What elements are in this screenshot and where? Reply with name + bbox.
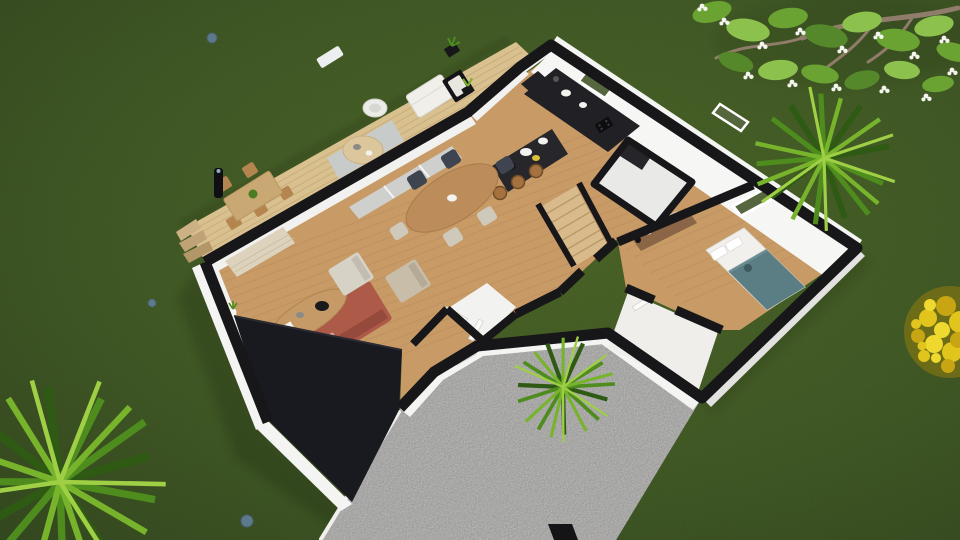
wire-chair-seat <box>369 104 381 113</box>
counter-plate <box>579 102 587 108</box>
yellow-dish <box>532 155 540 161</box>
table-tray <box>315 301 329 311</box>
house-render <box>0 0 960 540</box>
kettle <box>553 76 559 82</box>
bollard-lamp <box>217 169 221 173</box>
tabletop-plate <box>353 144 361 150</box>
table-decor <box>296 312 304 318</box>
throw-pillow <box>744 264 752 272</box>
island-plate <box>538 138 548 145</box>
island-plate <box>520 148 532 156</box>
tabletop-plate <box>366 150 373 155</box>
ground-light <box>148 299 156 307</box>
ground-light <box>241 515 253 527</box>
render-canvas <box>0 0 960 540</box>
bar-stool <box>512 176 525 189</box>
bar-stool <box>494 187 507 200</box>
ground-light <box>207 33 217 43</box>
bar-stool <box>530 165 543 178</box>
counter-plate <box>561 90 571 97</box>
table-plant <box>249 190 258 199</box>
table-centerpiece <box>447 194 457 201</box>
